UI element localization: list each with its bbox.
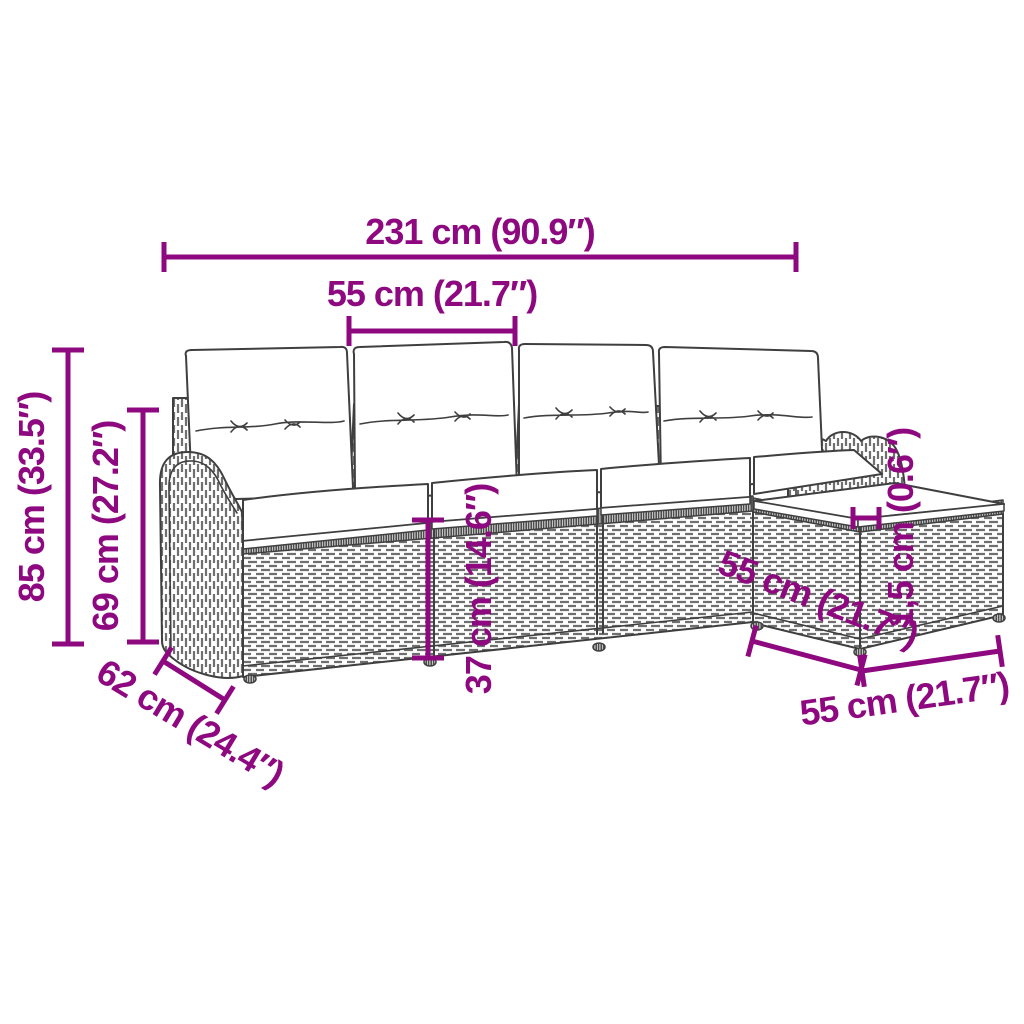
dimension-label-seat-module-width: 55 cm (21.7″) [327, 273, 537, 314]
dimension-total-width: 231 cm (90.9″) [164, 211, 796, 272]
dimension-label-ottoman-width: 55 cm (21.7″) [797, 664, 1011, 734]
dimension-backrest-height: 69 cm (27.2″) [85, 410, 159, 642]
dimension-label-backrest-height: 69 cm (27.2″) [85, 421, 126, 631]
dimension-label-total-height: 85 cm (33.5″) [11, 392, 52, 602]
dimension-label-seat-height: 37 cm (14.6″) [458, 484, 499, 694]
dimension-total-height: 85 cm (33.5″) [11, 350, 84, 644]
dimension-diagram: 231 cm (90.9″) 55 cm (21.7″) 85 cm (33.5… [0, 0, 1024, 1024]
dimension-seat-module-width: 55 cm (21.7″) [327, 273, 537, 346]
dimension-label-total-width: 231 cm (90.9″) [365, 211, 594, 252]
sofa-dimension-illustration: 231 cm (90.9″) 55 cm (21.7″) 85 cm (33.5… [0, 0, 1024, 1024]
dimension-label-cushion-thickness: 1,5 cm (0.6″) [880, 428, 921, 628]
